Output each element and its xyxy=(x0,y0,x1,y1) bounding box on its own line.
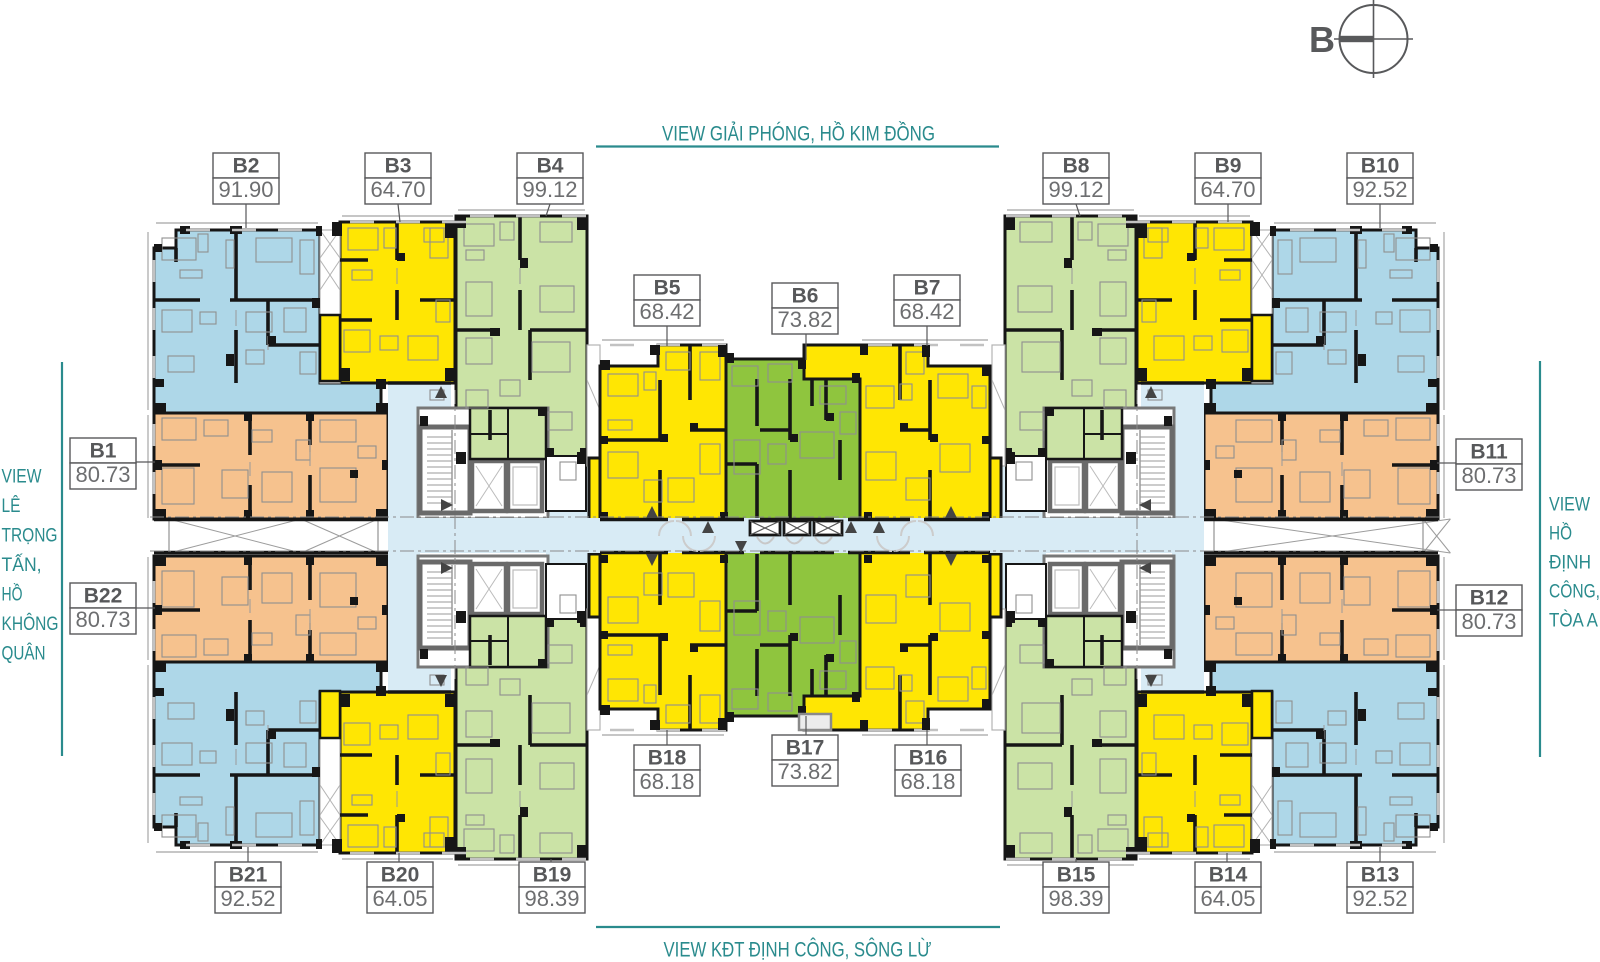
svg-text:B19: B19 xyxy=(533,864,572,887)
svg-text:92.52: 92.52 xyxy=(1352,886,1407,911)
svg-text:VIEW GIẢI PHÓNG, HỒ KIM ĐỒNG: VIEW GIẢI PHÓNG, HỒ KIM ĐỒNG xyxy=(662,121,935,146)
svg-text:B10: B10 xyxy=(1361,155,1400,178)
svg-text:B5: B5 xyxy=(654,277,681,300)
svg-text:68.42: 68.42 xyxy=(899,299,954,324)
svg-text:B4: B4 xyxy=(537,155,564,178)
svg-text:B21: B21 xyxy=(229,864,268,887)
svg-text:64.70: 64.70 xyxy=(1200,177,1255,202)
svg-text:80.73: 80.73 xyxy=(1461,463,1516,488)
svg-text:80.73: 80.73 xyxy=(75,462,130,487)
svg-text:TẤN,: TẤN, xyxy=(2,554,42,576)
svg-text:92.52: 92.52 xyxy=(1352,177,1407,202)
svg-text:B22: B22 xyxy=(84,585,123,608)
svg-text:64.70: 64.70 xyxy=(370,177,425,202)
svg-text:91.90: 91.90 xyxy=(218,177,273,202)
svg-text:B15: B15 xyxy=(1057,864,1096,887)
svg-text:99.12: 99.12 xyxy=(522,177,577,202)
svg-text:B20: B20 xyxy=(381,864,420,887)
svg-text:VIEW: VIEW xyxy=(2,467,42,488)
svg-text:B: B xyxy=(1309,19,1335,60)
svg-text:VIEW: VIEW xyxy=(1549,495,1590,516)
svg-text:KHÔNG: KHÔNG xyxy=(2,613,59,635)
svg-text:ĐỊNH: ĐỊNH xyxy=(1549,553,1591,574)
svg-text:TRỌNG: TRỌNG xyxy=(2,526,58,547)
svg-text:B6: B6 xyxy=(792,285,819,308)
svg-text:64.05: 64.05 xyxy=(1200,886,1255,911)
svg-text:99.12: 99.12 xyxy=(1048,177,1103,202)
svg-text:73.82: 73.82 xyxy=(777,759,832,784)
svg-text:B18: B18 xyxy=(648,747,687,770)
svg-text:CÔNG,: CÔNG, xyxy=(1549,581,1600,603)
svg-text:B12: B12 xyxy=(1470,587,1509,610)
svg-text:B3: B3 xyxy=(385,155,412,178)
svg-text:VIEW KĐT ĐỊNH CÔNG, SÔNG LỪ: VIEW KĐT ĐỊNH CÔNG, SÔNG LỪ xyxy=(664,939,932,962)
svg-text:B17: B17 xyxy=(786,737,825,760)
svg-text:68.18: 68.18 xyxy=(639,769,694,794)
svg-text:B8: B8 xyxy=(1063,155,1090,178)
svg-text:73.82: 73.82 xyxy=(777,307,832,332)
svg-text:B9: B9 xyxy=(1215,155,1242,178)
svg-text:B11: B11 xyxy=(1470,441,1508,464)
svg-text:80.73: 80.73 xyxy=(1461,609,1516,634)
svg-text:HỒ: HỒ xyxy=(2,584,23,606)
svg-text:68.42: 68.42 xyxy=(639,299,694,324)
svg-text:92.52: 92.52 xyxy=(220,886,275,911)
svg-text:B13: B13 xyxy=(1361,864,1400,887)
svg-text:B14: B14 xyxy=(1209,864,1248,887)
svg-text:98.39: 98.39 xyxy=(524,886,579,911)
svg-text:98.39: 98.39 xyxy=(1048,886,1103,911)
svg-text:TÒA A: TÒA A xyxy=(1549,610,1598,632)
svg-text:B1: B1 xyxy=(90,440,117,463)
svg-text:QUÂN: QUÂN xyxy=(2,643,46,665)
svg-text:68.18: 68.18 xyxy=(900,769,955,794)
svg-text:LÊ: LÊ xyxy=(2,495,21,517)
svg-text:B16: B16 xyxy=(909,747,948,770)
svg-text:80.73: 80.73 xyxy=(75,607,130,632)
svg-text:HỒ: HỒ xyxy=(1549,523,1572,545)
svg-text:B7: B7 xyxy=(914,277,941,300)
svg-text:B2: B2 xyxy=(233,155,260,178)
svg-text:64.05: 64.05 xyxy=(372,886,427,911)
